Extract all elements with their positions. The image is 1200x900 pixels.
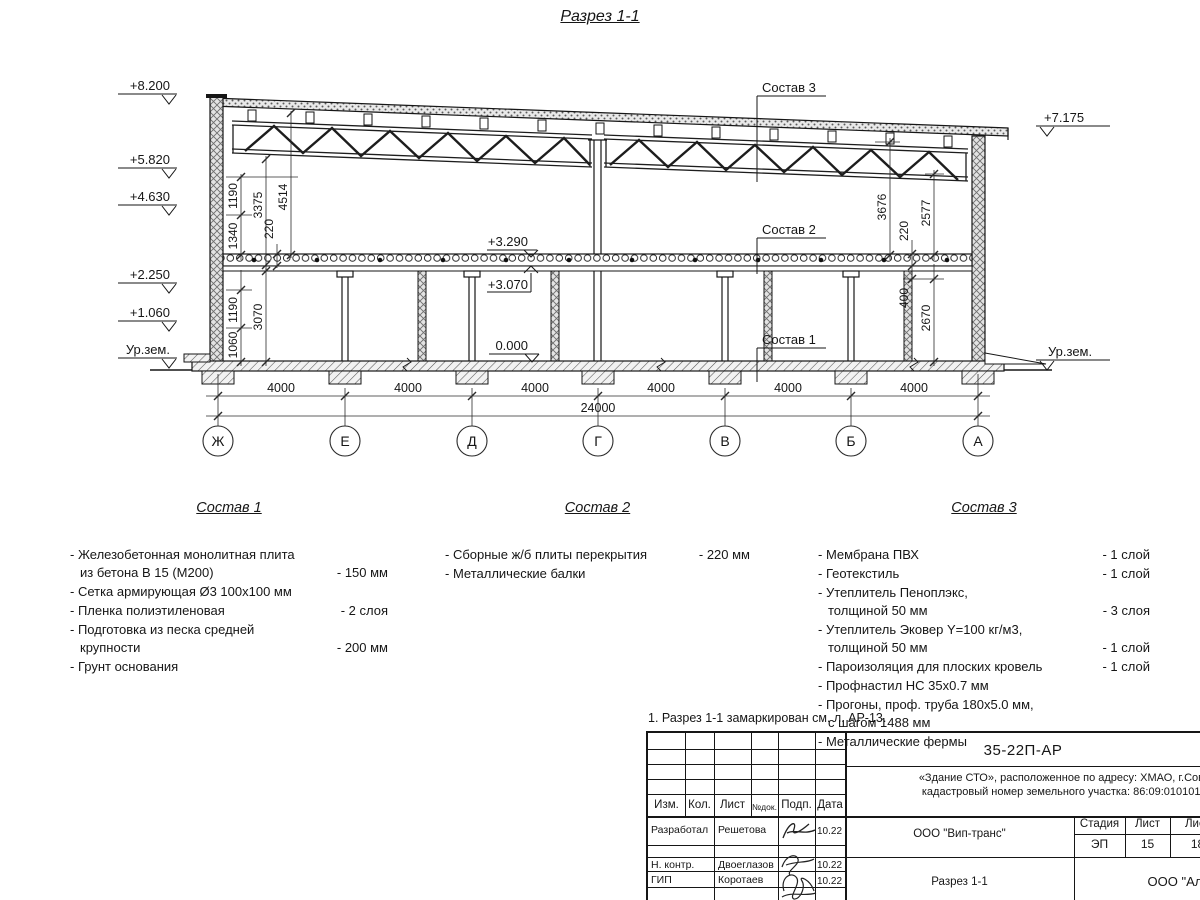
stage-value: ЭП bbox=[1074, 837, 1125, 851]
svg-text:1060: 1060 bbox=[226, 331, 240, 358]
sheet-label: Лист bbox=[1125, 818, 1170, 830]
col-ndoc: №док. bbox=[751, 802, 778, 812]
list-item: - Мембрана ПВХ- 1 слой bbox=[818, 546, 1150, 564]
row-date: 10.22 bbox=[817, 876, 842, 887]
signature-dvoeglazov-korotaev bbox=[776, 851, 818, 900]
list-item: - Пароизоляция для плоских кровель- 1 сл… bbox=[818, 658, 1150, 676]
signature-reshetova bbox=[779, 818, 819, 844]
svg-text:Ур.зем.: Ур.зем. bbox=[1048, 344, 1092, 359]
list-item: - Металлические балки bbox=[445, 565, 750, 583]
svg-text:4000: 4000 bbox=[774, 381, 802, 395]
list-item: - Сетка армирующая Ø3 100х100 мм bbox=[70, 583, 388, 601]
right-wall bbox=[972, 136, 985, 370]
svg-text:Состав 2: Состав 2 bbox=[762, 222, 816, 237]
company-name: ООО "Вип-транс" bbox=[845, 828, 1074, 840]
doc-number: 35-22П-АР bbox=[848, 742, 1198, 759]
org-name: ООО "Альянс" bbox=[1074, 874, 1200, 889]
axis-label: А bbox=[973, 433, 983, 449]
svg-text:4514: 4514 bbox=[276, 183, 290, 210]
row-name: Решетова bbox=[718, 824, 766, 836]
col-data: Дата bbox=[815, 799, 845, 811]
section-drawing: +8.200 +5.820 +4.630 +2.250 +1.060 Ур.зе… bbox=[0, 0, 1200, 490]
row-date: 10.22 bbox=[817, 826, 842, 837]
svg-text:220: 220 bbox=[897, 221, 911, 241]
axis-label: Е bbox=[340, 433, 349, 449]
stage-label: Стадия bbox=[1074, 818, 1125, 830]
composition-list-1: Состав 1 - Железобетонная монолитная пли… bbox=[70, 500, 388, 677]
svg-text:1340: 1340 bbox=[226, 222, 240, 249]
sheets-label: Лист bbox=[1170, 818, 1200, 830]
internal-level-marks: +3.290 +3.070 0.000 bbox=[487, 234, 539, 362]
sheet-value: 15 bbox=[1125, 837, 1170, 851]
composition-list-2: Состав 2 - Сборные ж/б плиты перекрытия-… bbox=[445, 500, 750, 584]
list-item: - Геотекстиль- 1 слой bbox=[818, 565, 1150, 583]
axis-label: Б bbox=[846, 433, 855, 449]
svg-text:+8.200: +8.200 bbox=[130, 78, 170, 93]
svg-text:3070: 3070 bbox=[251, 303, 265, 330]
svg-text:Состав 3: Состав 3 bbox=[762, 80, 816, 95]
list-item: - Железобетонная монолитная плита из бет… bbox=[70, 546, 388, 582]
list-item: - Грунт основания bbox=[70, 658, 388, 676]
list-item: - Утеплитель Эковер Y=100 кг/м3, толщино… bbox=[818, 621, 1150, 657]
row-role: Н. контр. bbox=[651, 859, 694, 871]
elevation-marks-left: +8.200 +5.820 +4.630 +2.250 +1.060 Ур.зе… bbox=[118, 78, 177, 368]
col-podp: Подп. bbox=[778, 799, 815, 811]
axis-label: Г bbox=[594, 433, 602, 449]
row-role: Разработал bbox=[651, 824, 708, 836]
svg-text:Ур.зем.: Ур.зем. bbox=[126, 342, 170, 357]
svg-text:+3.070: +3.070 bbox=[488, 277, 528, 292]
svg-text:0.000: 0.000 bbox=[495, 338, 528, 353]
sheets-value: 18 bbox=[1170, 837, 1200, 851]
svg-text:+5.820: +5.820 bbox=[130, 152, 170, 167]
svg-text:220: 220 bbox=[262, 219, 276, 239]
object-address-line2: кадастровый номер земельного участка: 86… bbox=[848, 786, 1200, 798]
row-name: Двоеглазов bbox=[718, 859, 774, 871]
svg-text:4000: 4000 bbox=[900, 381, 928, 395]
center-column bbox=[588, 140, 607, 361]
svg-text:+7.175: +7.175 bbox=[1044, 110, 1084, 125]
floor-slab bbox=[223, 254, 972, 271]
svg-text:+2.250: +2.250 bbox=[130, 267, 170, 282]
svg-text:1190: 1190 bbox=[226, 297, 240, 323]
list-item: - Профнастил НС 35х0.7 мм bbox=[818, 677, 1150, 695]
svg-text:+3.290: +3.290 bbox=[488, 234, 528, 249]
sheet-title: Разрез 1-1 bbox=[845, 876, 1074, 888]
elevation-marks-right: +7.175 Ур.зем. bbox=[1036, 110, 1110, 370]
axis-label: Д bbox=[467, 433, 477, 449]
composition-title: Состав 3 bbox=[818, 500, 1150, 516]
row-role: ГИП bbox=[651, 874, 672, 886]
list-item: - Подготовка из песка средней крупности-… bbox=[70, 621, 388, 657]
left-wall bbox=[206, 94, 227, 370]
axis-label: Ж bbox=[212, 433, 225, 449]
col-izm: Изм. bbox=[648, 799, 685, 811]
svg-text:4000: 4000 bbox=[267, 381, 295, 395]
svg-text:4000: 4000 bbox=[521, 381, 549, 395]
drawing-sheet: { "drawing_title": "Разрез 1-1", "colors… bbox=[0, 0, 1200, 900]
svg-text:3375: 3375 bbox=[251, 191, 265, 218]
svg-text:1190: 1190 bbox=[226, 183, 240, 209]
list-item: - Утеплитель Пеноплэкс, толщиной 50 мм- … bbox=[818, 584, 1150, 620]
title-block: Изм. Кол. Лист №док. Подп. Дата Разработ… bbox=[646, 731, 1200, 900]
svg-text:24000: 24000 bbox=[581, 401, 616, 415]
composition-title: Состав 1 bbox=[70, 500, 388, 516]
col-kol: Кол. bbox=[685, 799, 714, 811]
foundations bbox=[202, 371, 994, 384]
svg-text:+1.060: +1.060 bbox=[130, 305, 170, 320]
svg-text:+4.630: +4.630 bbox=[130, 189, 170, 204]
elevation-mark: +8.200 bbox=[130, 78, 170, 93]
axis-bubbles: Ж Е Д Г В Б А bbox=[203, 426, 993, 456]
col-list: Лист bbox=[714, 799, 751, 811]
svg-text:2670: 2670 bbox=[919, 304, 933, 331]
svg-text:2577: 2577 bbox=[919, 199, 933, 226]
row-name: Коротаев bbox=[718, 874, 763, 886]
svg-text:Состав 1: Состав 1 bbox=[762, 332, 816, 347]
dim-chains-left: 1190 1340 3375 4514 220 1190 3070 1060 bbox=[226, 109, 298, 366]
svg-text:4000: 4000 bbox=[647, 381, 675, 395]
svg-text:4000: 4000 bbox=[394, 381, 422, 395]
composition-title: Состав 2 bbox=[445, 500, 750, 516]
row-date: 10.22 bbox=[817, 860, 842, 871]
object-address-line1: «Здание СТО», расположенное по адресу: Х… bbox=[848, 772, 1200, 784]
list-item: - Сборные ж/б плиты перекрытия- 220 мм bbox=[445, 546, 750, 564]
svg-text:400: 400 bbox=[897, 288, 911, 308]
svg-text:3676: 3676 bbox=[875, 193, 889, 220]
axis-label: В bbox=[720, 433, 729, 449]
drawing-note: 1. Разрез 1-1 замаркирован см. л. АР-13. bbox=[648, 711, 886, 725]
list-item: - Пленка полиэтиленовая- 2 слоя bbox=[70, 602, 388, 620]
